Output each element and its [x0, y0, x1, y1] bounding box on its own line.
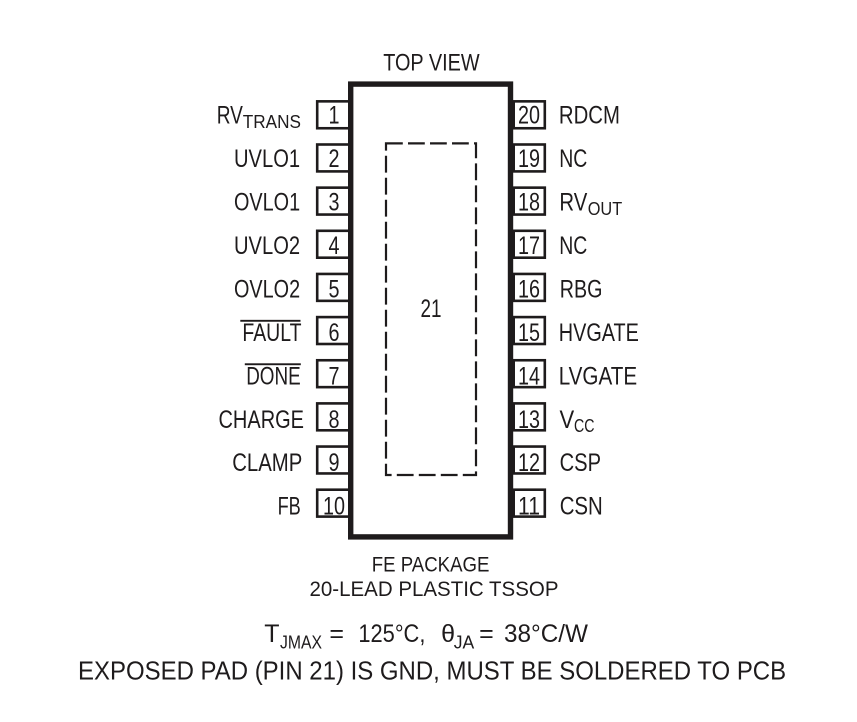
svg-text:CSP: CSP: [560, 449, 601, 477]
svg-text:4: 4: [329, 232, 340, 260]
svg-text:NC: NC: [559, 145, 587, 173]
svg-text:2: 2: [329, 145, 340, 173]
svg-text:20-LEAD PLASTIC TSSOP: 20-LEAD PLASTIC TSSOP: [310, 578, 559, 601]
svg-text:LVGATE: LVGATE: [559, 362, 637, 390]
svg-text:TRANS: TRANS: [243, 112, 301, 132]
svg-text:NC: NC: [559, 232, 587, 260]
svg-text:125°C,: 125°C,: [358, 620, 425, 648]
svg-text:OVLO1: OVLO1: [234, 189, 300, 217]
svg-text:RV: RV: [559, 189, 587, 217]
svg-text:=: =: [479, 620, 494, 648]
svg-text:20: 20: [518, 102, 540, 130]
svg-text:DONE: DONE: [246, 362, 301, 390]
svg-text:12: 12: [518, 449, 540, 477]
svg-text:38°C/W: 38°C/W: [504, 620, 588, 648]
svg-text:HVGATE: HVGATE: [559, 319, 639, 347]
svg-text:CSN: CSN: [560, 493, 603, 521]
svg-text:OVLO2: OVLO2: [234, 275, 300, 303]
svg-text:UVLO1: UVLO1: [234, 145, 300, 173]
svg-text:10: 10: [323, 493, 345, 521]
svg-text:6: 6: [329, 319, 340, 347]
svg-text:CHARGE: CHARGE: [219, 406, 305, 434]
svg-text:13: 13: [518, 406, 540, 434]
svg-text:FAULT: FAULT: [242, 319, 301, 347]
svg-text:9: 9: [329, 449, 340, 477]
svg-text:14: 14: [518, 362, 540, 390]
svg-text:T: T: [264, 620, 279, 648]
svg-text:11: 11: [518, 493, 540, 521]
svg-text:19: 19: [518, 145, 540, 173]
svg-text:8: 8: [329, 406, 340, 434]
svg-text:RDCM: RDCM: [559, 102, 620, 130]
svg-text:TOP VIEW: TOP VIEW: [383, 49, 480, 76]
svg-text:CLAMP: CLAMP: [232, 449, 302, 477]
svg-text:V: V: [560, 406, 575, 434]
svg-text:7: 7: [329, 362, 340, 390]
svg-text:5: 5: [329, 275, 340, 303]
svg-text:EXPOSED PAD (PIN 21) IS GND, M: EXPOSED PAD (PIN 21) IS GND, MUST BE SOL…: [78, 655, 786, 685]
svg-text:FB: FB: [278, 493, 301, 521]
svg-text:21: 21: [421, 295, 442, 323]
svg-text:JA: JA: [454, 633, 475, 653]
svg-text:16: 16: [518, 275, 540, 303]
svg-text:JMAX: JMAX: [280, 633, 322, 653]
svg-text:FE PACKAGE: FE PACKAGE: [372, 553, 490, 576]
svg-text:UVLO2: UVLO2: [234, 232, 300, 260]
svg-text:18: 18: [518, 189, 540, 217]
svg-text:=: =: [329, 620, 344, 648]
svg-text:RV: RV: [217, 102, 243, 130]
svg-text:3: 3: [329, 189, 340, 217]
svg-text:1: 1: [329, 102, 340, 130]
svg-text:CC: CC: [574, 416, 595, 436]
svg-text:OUT: OUT: [588, 199, 623, 219]
svg-text:RBG: RBG: [560, 275, 603, 303]
svg-text:17: 17: [518, 232, 540, 260]
svg-text:15: 15: [518, 319, 540, 347]
